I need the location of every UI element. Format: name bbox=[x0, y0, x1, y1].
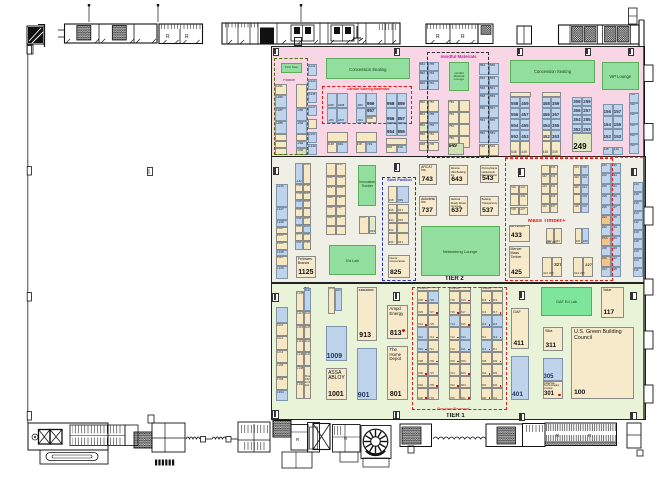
svg-text:R: R bbox=[166, 34, 170, 40]
svg-text:R: R bbox=[185, 34, 189, 40]
svg-text:R: R bbox=[296, 437, 300, 442]
svg-text:R: R bbox=[461, 34, 465, 40]
svg-text:R: R bbox=[436, 34, 440, 40]
